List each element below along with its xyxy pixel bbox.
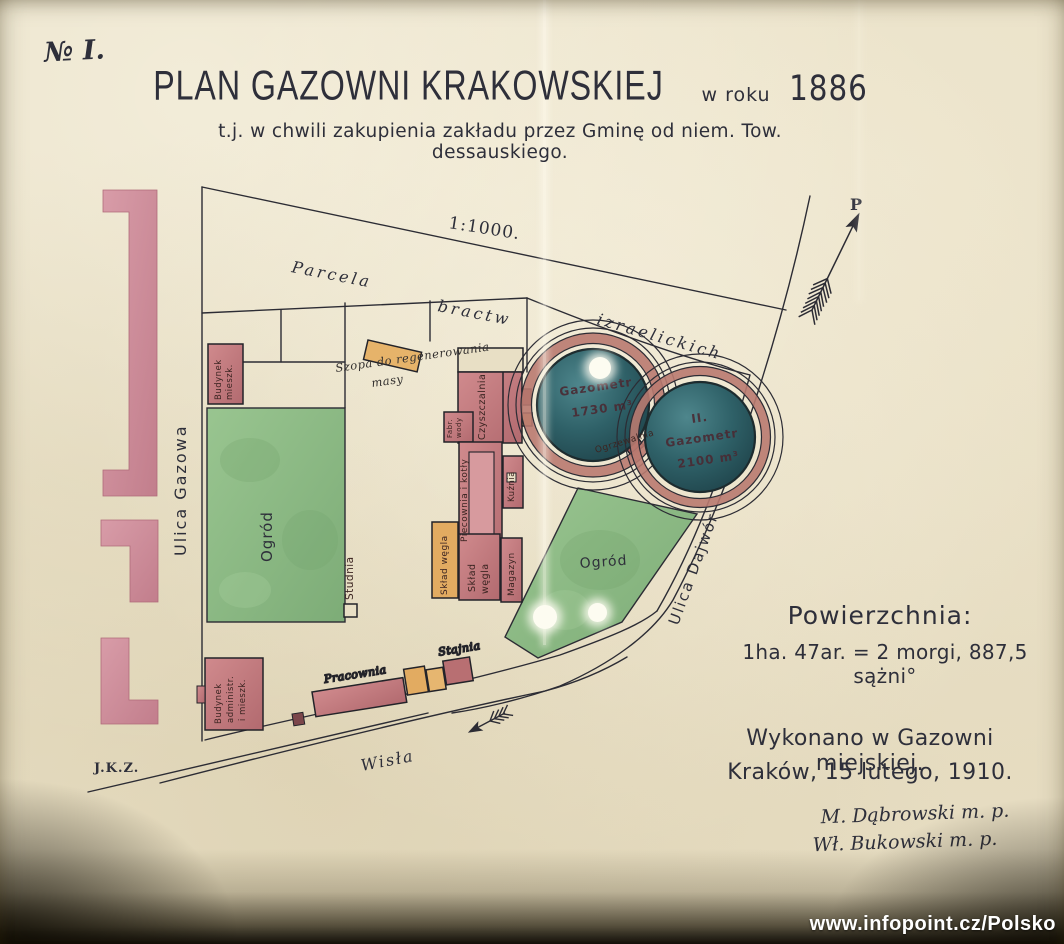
sheet-number: № I. <box>43 34 105 68</box>
water-plant-label-line1: Fabr. <box>446 419 454 438</box>
river-arrow-head <box>468 723 481 735</box>
scale-label: 1:1000. <box>447 213 521 244</box>
street-walls <box>101 190 158 724</box>
draftsman-initials: J.K.Z. <box>94 761 139 776</box>
forge-label: Kuźnia <box>507 471 517 502</box>
dwelling-label-line2: mieszk. <box>225 364 235 400</box>
garden-west-texture <box>282 510 338 570</box>
map-title-year: 1886 <box>789 69 868 109</box>
place-date-note: Kraków, 15 lutego, 1910. <box>705 760 1035 785</box>
retort-house-label: Piecownia i kotły <box>460 458 470 542</box>
garden-east-label: Ogród <box>579 553 628 572</box>
gate-block-group <box>292 712 305 726</box>
street-label-gazowa: Ulica Gazowa <box>171 424 190 556</box>
shed-orange-2 <box>426 667 446 691</box>
admin-label-line1: Budynek <box>214 683 224 724</box>
wall-segment-south <box>101 638 158 724</box>
watermark-text: www.infopoint.cz/Polsko <box>810 913 1056 936</box>
north-arrow-feathers <box>807 279 837 326</box>
coal-store-b-label-line2: węgla <box>480 563 491 594</box>
garden-west-texture <box>219 572 271 608</box>
map-title-year-prefix: w roku <box>701 84 770 106</box>
map-subtitle: t.j. w chwili zakupienia zakładu przez G… <box>150 121 850 163</box>
gasometer-2-number: II. <box>690 410 708 426</box>
plan-photo: Pracownia Stajnia Gazometr 1730 m³ II. G… <box>0 0 1064 944</box>
warehouse-label: Magazyn <box>507 552 517 596</box>
stable-label: Stajnia <box>437 639 481 659</box>
admin-label-line3: i mieszk. <box>238 679 248 721</box>
well-label: Studnia <box>344 556 356 600</box>
parcel-band-top-line <box>202 187 786 310</box>
north-label: P <box>850 195 862 214</box>
garden-west-label: Ogród <box>258 511 276 562</box>
garden-west-group <box>207 408 345 622</box>
north-arrow-shaft <box>812 215 858 310</box>
stable-building <box>443 657 473 685</box>
parcel-band-word-2: bractw <box>436 296 513 329</box>
shed-orange-1 <box>404 666 429 695</box>
photo-glare-spot <box>588 603 607 622</box>
workshop-row: Pracownia Stajnia <box>308 639 487 717</box>
north-arrow-head <box>847 213 863 231</box>
area-note-title: Powierzchnia: <box>770 601 990 630</box>
photo-glare-spot <box>589 357 611 379</box>
coal-store-a-label: Skład węgla <box>440 535 450 595</box>
wall-segment-middle <box>101 520 158 602</box>
admin-annex <box>197 686 205 703</box>
water-plant-label-line2: wody <box>455 417 463 438</box>
gate-block <box>292 712 305 726</box>
parcel-band-word-1: Parcela <box>289 257 373 291</box>
dwelling-label-line1: Budynek <box>214 359 224 400</box>
map-title-row: PLAN GAZOWNI KRAKOWSKIEJ w roku 1886 <box>150 70 850 110</box>
north-arrow <box>798 210 868 325</box>
coal-store-b-label-line1: Skład <box>467 563 478 592</box>
wall-segment-north <box>103 190 157 496</box>
map-title: PLAN GAZOWNI KRAKOWSKIEJ <box>153 63 664 110</box>
admin-label-line2: administr. <box>226 676 236 723</box>
photo-fold-line-2 <box>858 0 860 300</box>
photo-glare-spot <box>533 605 557 629</box>
shed-label-line2: masy <box>370 372 404 390</box>
area-note-value: 1ha. 47ar. = 2 morgi, 887,5 sążni° <box>735 640 1035 688</box>
purifier-label: Czyszczalnia <box>477 374 488 440</box>
well-symbol <box>344 604 357 617</box>
river-label: Wisła <box>359 746 416 775</box>
garden-west-texture <box>220 438 280 482</box>
